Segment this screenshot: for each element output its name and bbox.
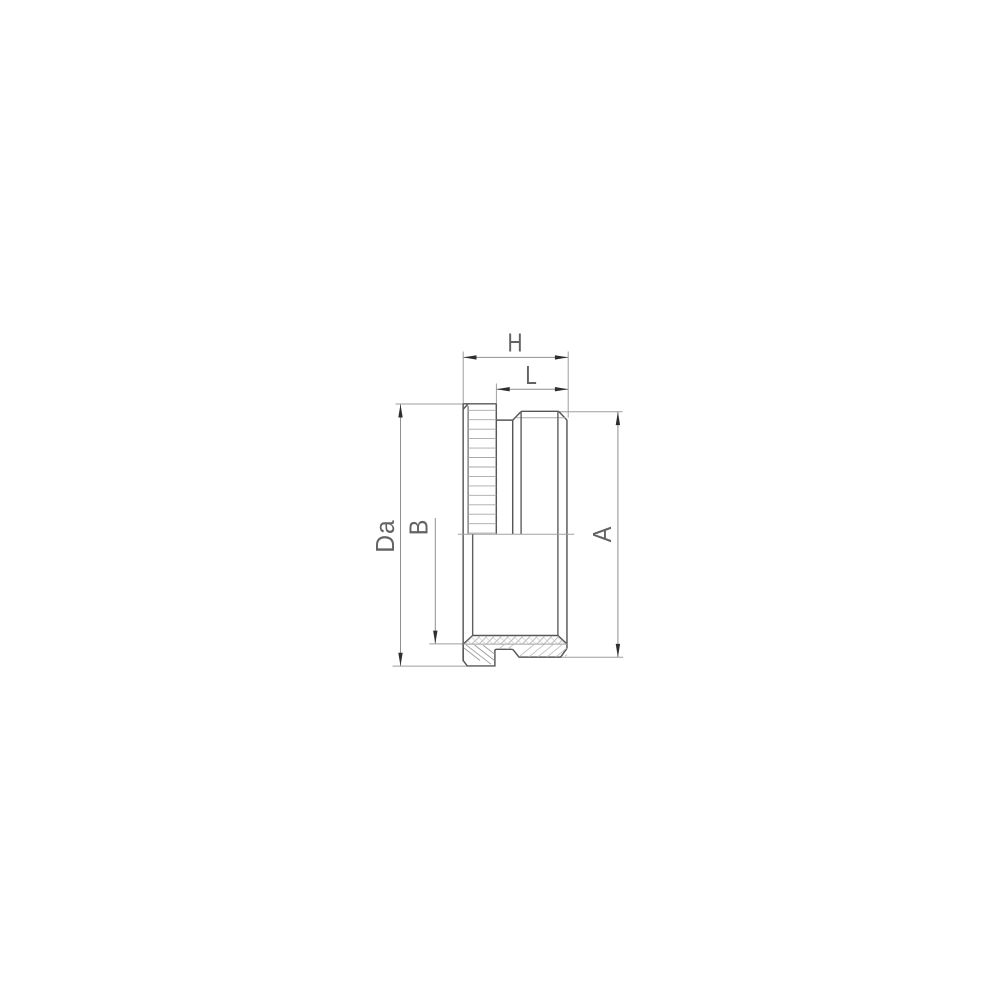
svg-text:L: L (525, 361, 537, 390)
svg-text:B: B (405, 520, 433, 536)
svg-text:A: A (589, 526, 617, 542)
svg-text:H: H (507, 328, 522, 357)
svg-text:Da: Da (371, 519, 400, 552)
